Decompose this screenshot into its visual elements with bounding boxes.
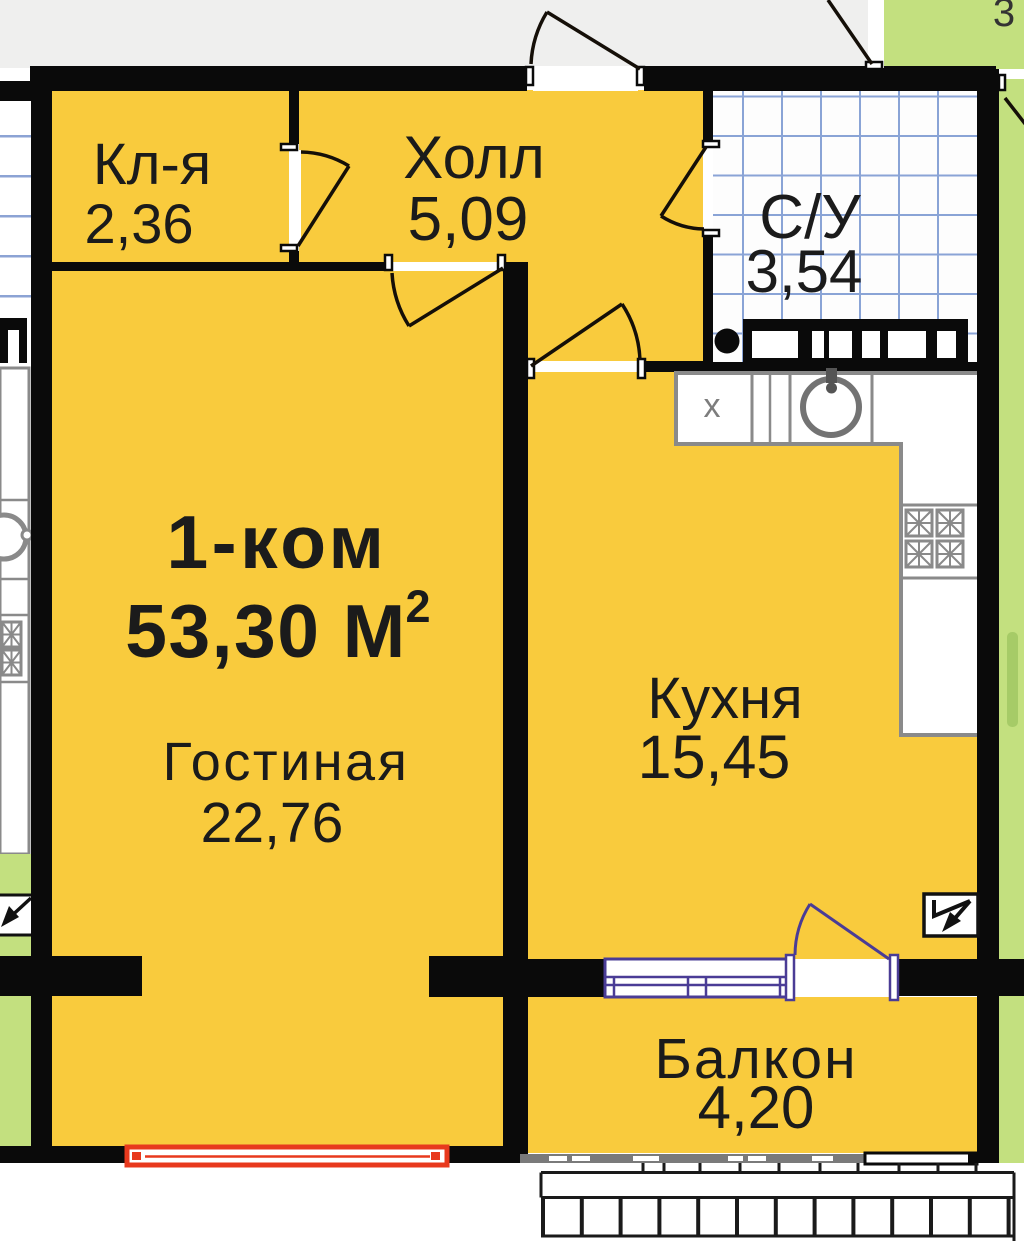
svg-text:x: x — [704, 387, 721, 425]
svg-text:Кл-я: Кл-я — [93, 132, 211, 197]
svg-text:Гостиная: Гостиная — [163, 732, 410, 792]
svg-text:3: 3 — [993, 0, 1015, 35]
svg-text:15,45: 15,45 — [638, 723, 791, 791]
svg-text:22,76: 22,76 — [201, 791, 344, 855]
svg-text:2: 2 — [405, 581, 430, 632]
svg-text:3,54: 3,54 — [746, 238, 863, 305]
svg-text:4,20: 4,20 — [698, 1074, 815, 1141]
svg-text:Холл: Холл — [403, 124, 544, 191]
svg-text:1-ком: 1-ком — [166, 500, 387, 584]
svg-text:Кухня: Кухня — [647, 666, 802, 731]
svg-text:2,36: 2,36 — [85, 192, 194, 255]
svg-text:53,30 М: 53,30 М — [125, 589, 407, 673]
svg-text:5,09: 5,09 — [408, 185, 529, 254]
